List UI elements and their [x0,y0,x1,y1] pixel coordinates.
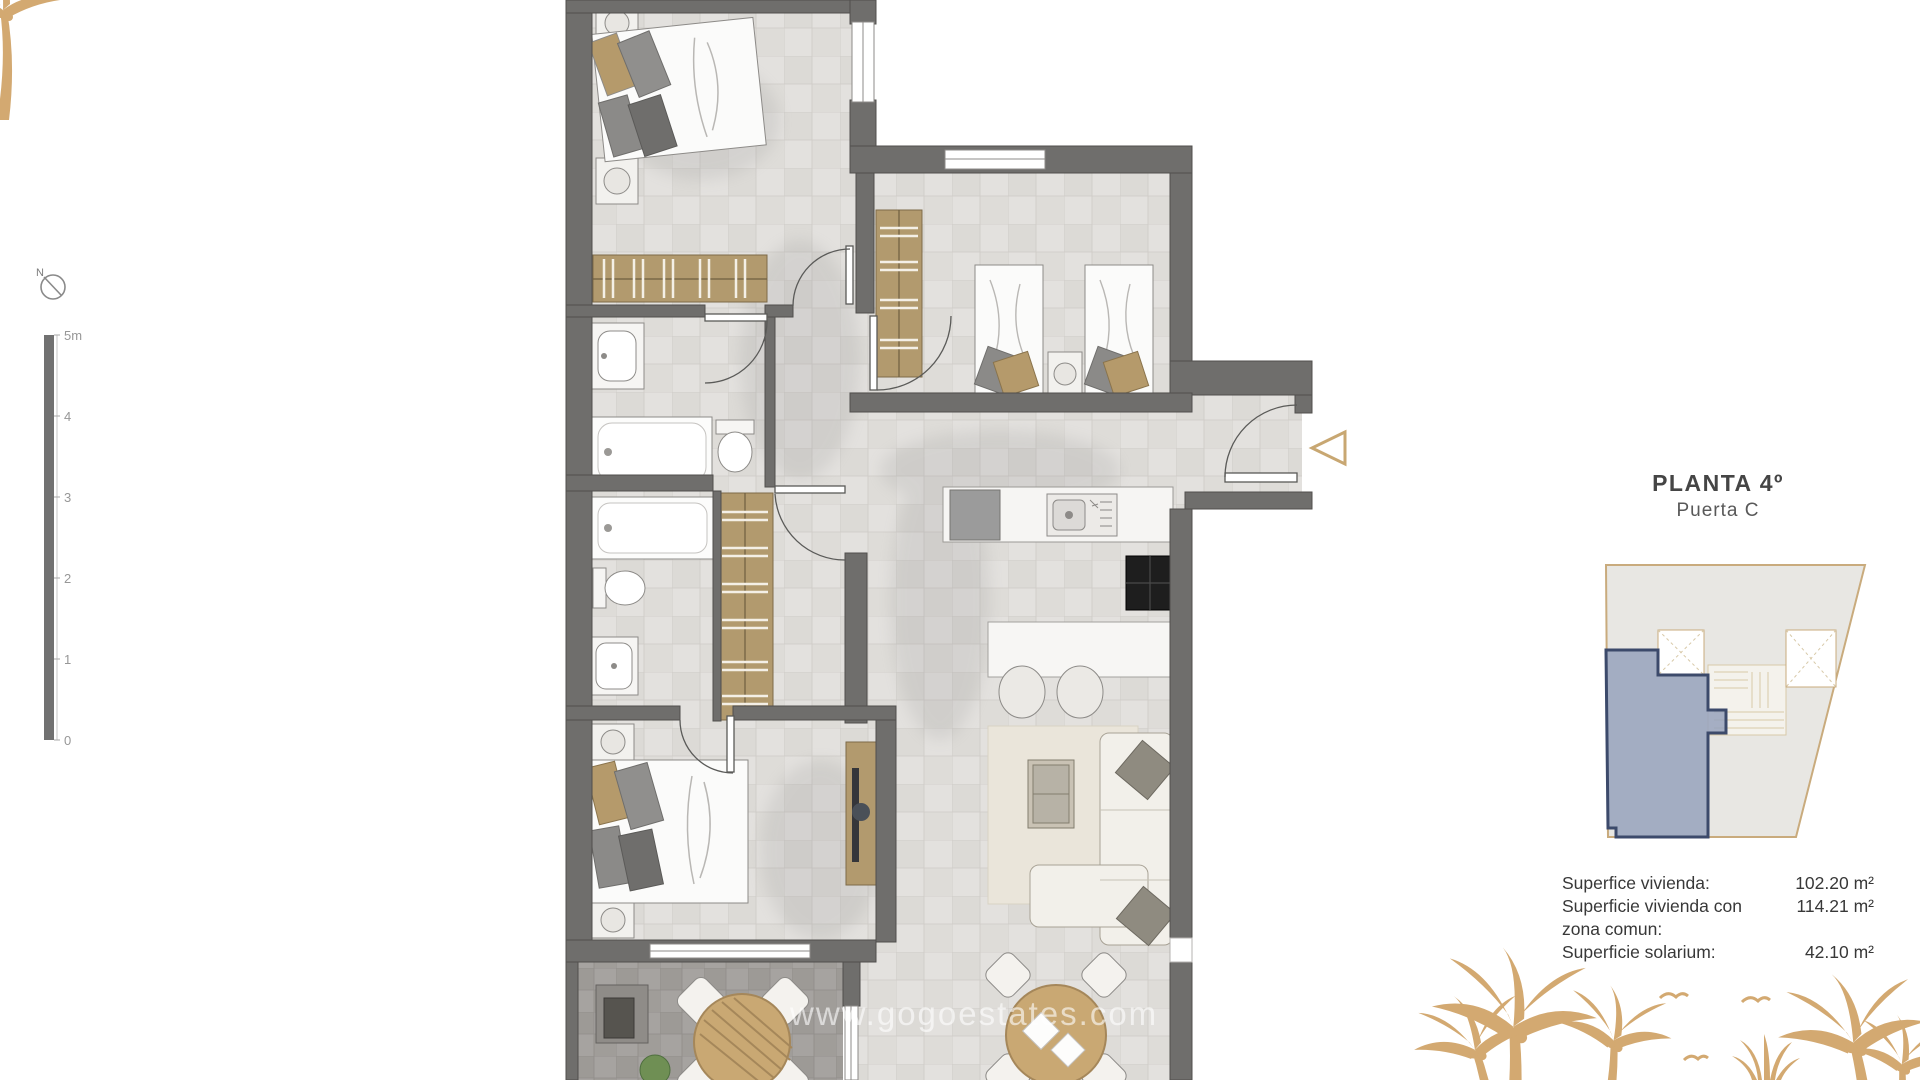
unit-highlight [1606,650,1726,837]
courtyard [1658,630,1704,675]
area-value: 114.21 m² [1797,895,1875,918]
fridge [950,490,1000,540]
floorplan-page: N 5m 4 3 2 1 0 [0,0,1920,1080]
bush-icon [1732,1034,1800,1080]
scale-label: 2 [64,571,71,586]
lamp [601,730,625,754]
compass-needle-icon [44,277,61,295]
area-value: 102.20 m² [1795,872,1874,895]
courtyard [1786,630,1836,687]
watermark: www.gogoestates.com [790,995,1130,1033]
scale-bar-fill [44,335,54,740]
scale-label: 0 [64,733,71,748]
double-bed [585,760,748,903]
bbq-unit [596,985,648,1043]
area-label: zona comun: [1562,918,1662,941]
page-title: PLANTA 4º [1568,470,1868,497]
single-bed [974,265,1043,398]
area-row: Superfice vivienda: 102.20 m² [1562,872,1874,895]
stool [1057,666,1103,718]
area-value: 42.10 m² [1805,941,1874,964]
area-label: Superficie vivienda con [1562,895,1742,918]
single-bed [1084,265,1153,398]
area-row: zona comun: [1562,918,1874,941]
tv-sideboard [846,742,876,885]
double-bed [587,17,766,162]
scale-label: 4 [64,409,71,424]
north-compass: N [36,267,65,299]
area-row: Superficie vivienda con 114.21 m² [1562,895,1874,918]
scale-label: 3 [64,490,71,505]
apartment-plan [566,0,1345,1080]
window [852,22,874,102]
bird-icon [1660,994,1770,1060]
surface-areas: Superfice vivienda: 102.20 m² Superficie… [1562,872,1874,964]
page-subtitle: Puerta C [1568,500,1868,522]
area-label: Superficie solarium: [1562,941,1716,964]
bathtub [592,497,713,559]
cooktop [1126,556,1174,610]
north-label: N [36,267,44,279]
faucet [601,353,607,359]
wardrobe [593,255,767,302]
area-label: Superfice vivienda: [1562,872,1710,895]
keyplan-inset [1606,565,1865,837]
window [945,150,1045,169]
lamp [1054,363,1076,385]
area-row: Superficie solarium: 42.10 m² [1562,941,1874,964]
door-jamb [1170,938,1192,962]
wardrobe [876,210,922,377]
toilet [716,420,754,472]
kitchen-sink [1047,494,1117,536]
plant [640,1055,670,1080]
coffee-table [1028,760,1074,828]
lamp [601,908,625,932]
window [650,944,810,958]
scale-bar: 5m 4 3 2 1 0 [44,328,82,748]
palm-tree-icon [0,0,60,120]
stool [999,666,1045,718]
scale-label: 1 [64,652,71,667]
scale-label: 5m [64,328,82,343]
entrance-arrow-icon [1312,432,1345,464]
toilet [593,568,645,608]
lamp [604,168,630,194]
hall-wardrobe [718,493,773,720]
sink-cabinet [590,637,638,695]
